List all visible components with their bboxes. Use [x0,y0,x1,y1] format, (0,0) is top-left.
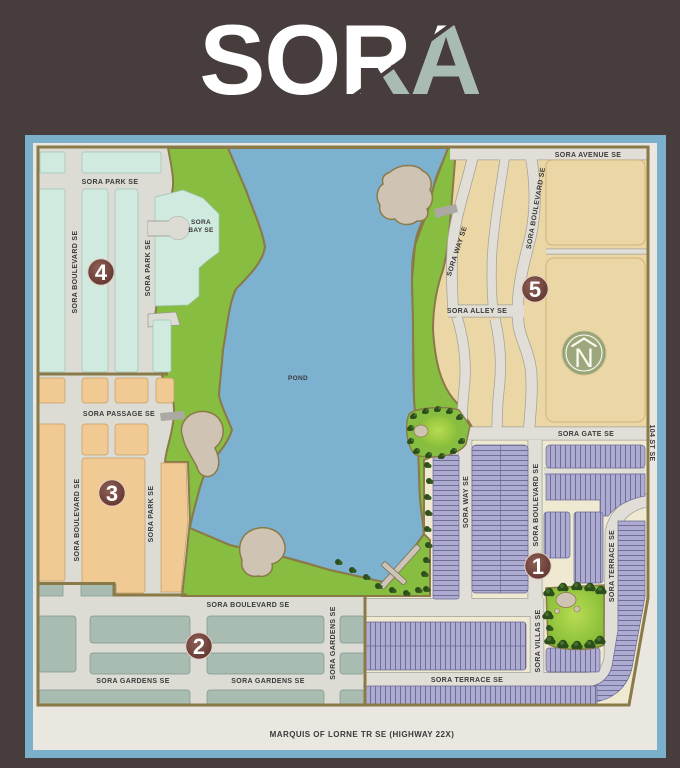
svg-text:SORA BOULEVARD SE: SORA BOULEVARD SE [74,479,81,562]
svg-text:SORA AVENUE SE: SORA AVENUE SE [555,152,622,159]
svg-text:N: N [574,343,594,373]
svg-text:SORA GATE SE: SORA GATE SE [558,431,614,438]
svg-text:SORA VILLAS SE: SORA VILLAS SE [535,610,542,673]
svg-text:SORA BOULEVARD SE: SORA BOULEVARD SE [207,602,290,609]
svg-text:4: 4 [95,260,108,285]
svg-text:SORA GARDENS SE: SORA GARDENS SE [231,678,304,685]
svg-text:SORA PARK SE: SORA PARK SE [145,240,152,297]
svg-text:2: 2 [193,634,205,659]
svg-text:SORA TERRACE SE: SORA TERRACE SE [609,530,616,602]
svg-text:SORA GARDENS SE: SORA GARDENS SE [96,678,169,685]
svg-text:SORA TERRACE SE: SORA TERRACE SE [431,677,503,684]
svg-text:SORA WAY SE: SORA WAY SE [463,476,470,528]
svg-text:104 ST SE: 104 ST SE [648,424,655,461]
svg-text:SORA: SORA [191,219,211,226]
svg-text:SORA BOULEVARD SE: SORA BOULEVARD SE [533,464,540,547]
svg-text:SORA ALLEY SE: SORA ALLEY SE [447,308,507,315]
svg-text:MARQUIS OF LORNE TR SE (HIGHWA: MARQUIS OF LORNE TR SE (HIGHWAY 22X) [270,730,455,739]
svg-text:5: 5 [529,277,541,302]
svg-text:POND: POND [288,375,308,382]
svg-text:SORA GARDENS SE: SORA GARDENS SE [330,606,337,679]
svg-text:BAY SE: BAY SE [188,227,214,234]
svg-text:1: 1 [532,554,544,579]
svg-text:SORA PARK SE: SORA PARK SE [82,179,139,186]
svg-text:SORA PARK SE: SORA PARK SE [148,486,155,543]
svg-text:SORA BOULEVARD SE: SORA BOULEVARD SE [72,231,79,314]
svg-text:SORA PASSAGE SE: SORA PASSAGE SE [83,411,155,418]
svg-text:3: 3 [106,481,118,506]
